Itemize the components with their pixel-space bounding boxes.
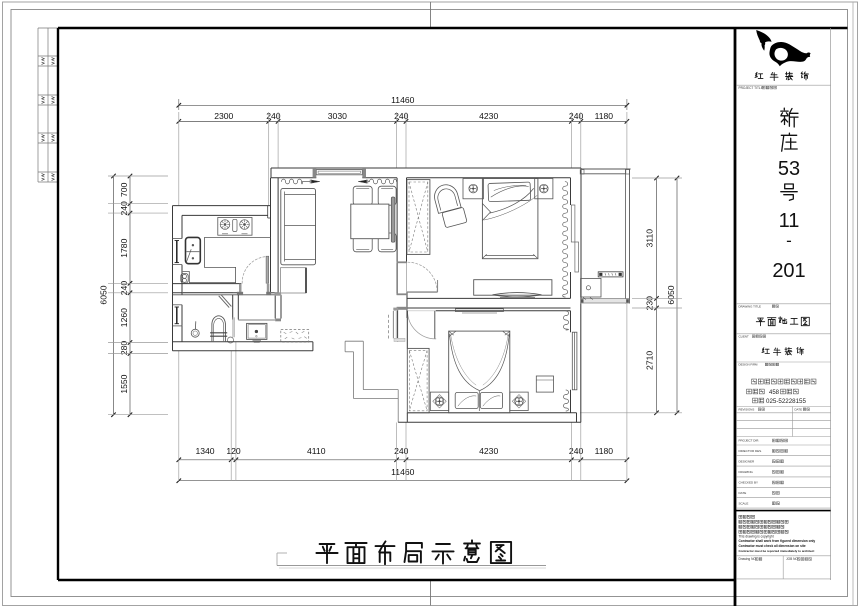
svg-text:1780: 1780 xyxy=(119,238,129,257)
svg-text:REVISIONS: REVISIONS xyxy=(739,407,755,411)
svg-text:11460: 11460 xyxy=(391,467,414,477)
svg-text:CLIENT: CLIENT xyxy=(739,334,750,338)
svg-text:DIRECTOR DES.: DIRECTOR DES. xyxy=(739,449,763,453)
svg-text:3030: 3030 xyxy=(328,111,347,121)
svg-text:DESIGNER: DESIGNER xyxy=(739,459,756,463)
svg-text:11: 11 xyxy=(779,210,800,232)
svg-text:DRAWING TITLE: DRAWING TITLE xyxy=(739,304,762,308)
svg-text:6050: 6050 xyxy=(666,285,676,304)
svg-text:PROJECT TITLE: PROJECT TITLE xyxy=(739,86,763,90)
svg-text:DATE: DATE xyxy=(795,407,803,411)
svg-text:JOB NO: JOB NO xyxy=(786,557,798,561)
svg-text:Contractor must check all dime: Contractor must check all dimension on s… xyxy=(739,544,806,548)
svg-text:Drawing NO: Drawing NO xyxy=(739,557,757,561)
svg-text:458: 458 xyxy=(769,390,780,396)
svg-text:3110: 3110 xyxy=(644,229,654,248)
svg-text:SCALE: SCALE xyxy=(739,501,749,505)
svg-text:This drawing is copyright: This drawing is copyright xyxy=(739,534,774,538)
svg-text:4230: 4230 xyxy=(479,111,498,121)
svg-text:201: 201 xyxy=(772,260,805,282)
svg-text:700: 700 xyxy=(119,182,129,197)
svg-text:6050: 6050 xyxy=(99,285,109,304)
svg-text:2710: 2710 xyxy=(644,351,654,370)
svg-text:1550: 1550 xyxy=(119,374,129,393)
svg-text:120: 120 xyxy=(226,446,241,456)
svg-text:DRAWING: DRAWING xyxy=(739,470,754,474)
svg-text:4110: 4110 xyxy=(307,446,326,456)
svg-text:Contractor must be reported im: Contractor must be reported immediately … xyxy=(739,549,815,553)
svg-text:1260: 1260 xyxy=(119,308,129,327)
svg-text:2300: 2300 xyxy=(214,111,233,121)
svg-text:Contractor shall work from fig: Contractor shall work from figured dimen… xyxy=(739,539,816,543)
svg-text:11460: 11460 xyxy=(391,95,414,105)
svg-text:CHECKED BY: CHECKED BY xyxy=(739,481,759,485)
svg-text:PROJECT DIR.: PROJECT DIR. xyxy=(739,439,760,443)
svg-text:4230: 4230 xyxy=(479,446,498,456)
svg-text:53: 53 xyxy=(778,158,800,180)
svg-text:1340: 1340 xyxy=(195,446,214,456)
svg-text:DESIGN FIRM: DESIGN FIRM xyxy=(739,363,759,367)
svg-text:1180: 1180 xyxy=(595,111,614,121)
svg-text:DATE: DATE xyxy=(739,491,747,495)
svg-text:025-52228155: 025-52228155 xyxy=(766,398,806,405)
svg-text:1180: 1180 xyxy=(595,446,614,456)
svg-text:-: - xyxy=(786,231,792,250)
